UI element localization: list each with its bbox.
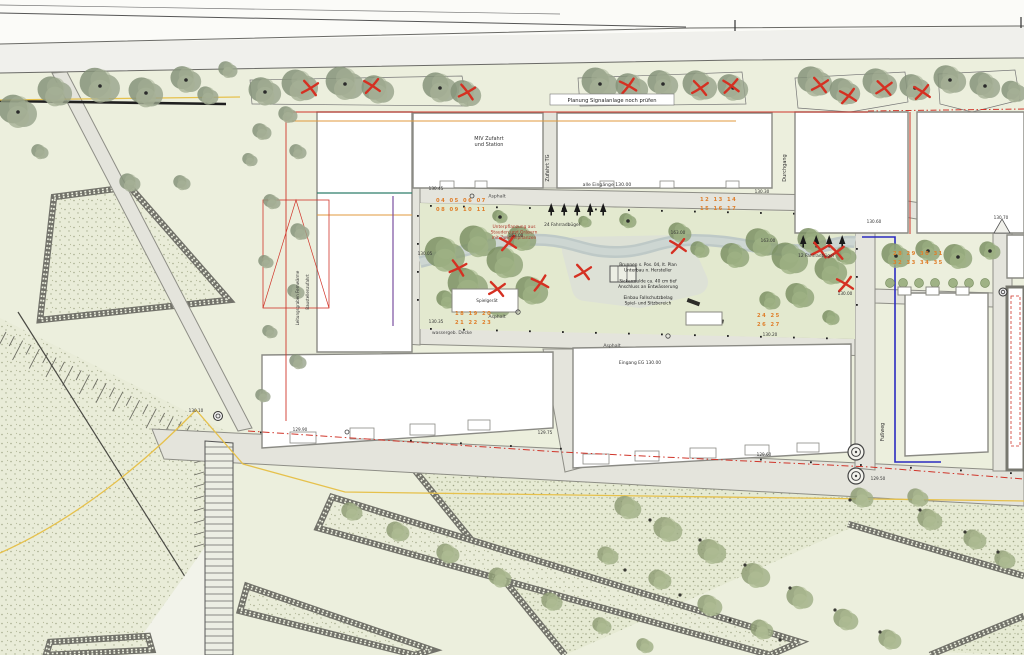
court-tree [442,291,453,302]
shrub-tree [840,610,853,623]
shrub-tree [924,510,937,523]
facade-entrance [475,181,487,188]
path-post [856,248,858,250]
street-tree [258,124,268,134]
shrub-tree [749,564,764,579]
plan-label: 129.60 [757,452,772,457]
site-plan-drawing: Planung Signalanlage noch prüfenMIV Zufa… [0,0,1024,655]
court-tree [496,248,515,267]
existing-tree-dot [948,78,952,82]
shrub-ball [965,279,974,288]
path-post [661,210,663,212]
stairs-strip [205,441,233,655]
planting-dot [788,586,791,589]
parking-number-row: 15 16 17 [700,206,737,212]
planting-dot [878,630,881,633]
shrub-tree [857,488,869,500]
path-post [960,470,962,472]
plan-label: Durchgang [782,154,788,181]
path-post [793,337,795,339]
court-tree [582,216,589,223]
path-post [760,459,762,461]
planting-dot [728,618,731,621]
building-i [905,293,988,456]
path-post [496,330,498,332]
existing-tree-dot [956,255,960,259]
planting-dot [918,508,921,511]
parking-number-row: 21 22 23 [455,320,492,326]
court-tree [827,311,836,320]
parking-number-row: 32 33 34 35 [893,260,944,266]
path-post [417,243,419,245]
plan-label: 130.70 [994,215,1009,220]
existing-tree-dot [983,84,987,88]
path-post [760,336,762,338]
plan-label: MIV Zufahrtund Station [474,136,503,148]
path-post [595,209,597,211]
court-tree [696,242,706,252]
plan-label: 130.30 [755,189,770,194]
court-tree [436,238,457,259]
plan-label: 130.05 [418,251,433,256]
street-tree [268,195,277,204]
path-post [417,215,419,217]
existing-tree-dot [343,82,347,86]
street-tree [36,145,45,154]
path-post [460,442,462,444]
plan-label: 163.00 [509,233,524,238]
shrub-ball [981,279,990,288]
shrub-tree [393,522,405,534]
bike-rack-icon [802,244,804,248]
street-tree [178,176,187,185]
parking-number-row: 04 05 06 07 [436,198,487,204]
surface-rect [898,287,911,295]
planting-dot [996,550,999,553]
plan-label: wassergeb. Decke [432,330,472,336]
street-tree [291,71,310,90]
parking-number-row: 08 09 10 11 [436,207,487,213]
shrub-tree [443,544,455,556]
path-post [560,448,562,450]
site-plan-stage: Planung Signalanlage noch prüfenMIV Zufa… [0,0,1024,655]
plan-label: Fußweg [880,423,886,441]
plan-label: 12 Fahrradbügel [798,253,834,259]
path-post [417,299,419,301]
path-post [410,440,412,442]
planting-dot [778,638,781,641]
bike-rack-icon [602,212,604,216]
path-post [810,461,812,463]
path-post [727,335,729,337]
street-tree [1008,82,1021,95]
manhole-cover [999,288,1007,296]
shrub-ball [886,279,895,288]
shrub-tree [913,489,924,500]
shrub-tree [547,593,558,604]
existing-tree-dot [626,219,630,223]
shrub-tree [1000,551,1011,562]
shrub-tree [655,570,667,582]
shrub-ball [899,279,908,288]
street-tree [246,154,254,162]
bike-rack-icon [550,212,552,216]
path-post [430,328,432,330]
facade-entrance [410,424,435,435]
surface-rect [926,287,939,295]
building-g2 [1007,235,1024,278]
planting-dot [678,593,681,596]
court-tree [469,227,488,246]
street-tree [266,326,274,334]
parking-number-row: 28 29 30 31 [893,251,944,257]
shrub-tree [794,587,808,601]
surface-rect [956,287,969,295]
path-post [595,332,597,334]
path-post [694,334,696,336]
facade-entrance [635,451,659,461]
building-d [413,113,543,188]
street-tree [284,107,294,117]
street-tree [259,390,267,398]
existing-tree-dot [498,215,502,219]
manhole-cover [214,412,223,421]
existing-tree-dot [16,110,20,114]
facade-entrance [660,181,674,188]
street-tree [125,174,136,185]
street-tree [262,256,270,264]
shrub-tree [622,497,636,511]
street-tree [224,62,234,72]
existing-tree-dot [988,249,992,253]
plan-label: Asphalt [488,194,505,200]
path-post [496,206,498,208]
plan-label: Asphalt [603,343,620,349]
plan-label: 129.75 [538,430,553,435]
plan-label: 130.60 [867,219,882,224]
shrub-tree [704,596,717,609]
shrub-tree [641,639,650,648]
court-tree [793,284,808,299]
existing-tree-dot [438,86,442,90]
parking-number-row: 26 27 [757,322,781,328]
planting-dot [623,568,626,571]
building-f [795,112,908,233]
plan-label: 130.10 [189,408,204,413]
path-post [430,205,432,207]
plan-label: Zufahrt TG [545,154,551,181]
shrub-tree [598,618,608,628]
shrub-tree [661,518,676,533]
shrub-tree [705,540,720,555]
surface-rect [686,312,722,325]
existing-tree-dot [98,84,102,88]
facade-entrance [468,420,490,430]
shrub-ball [949,279,958,288]
plan-label: 130.20 [763,332,778,337]
planter-circle-dot [855,451,857,453]
planting-dot [698,538,701,541]
court-tree [728,244,743,259]
path-post [1010,472,1012,474]
plan-label: Planung Signalanlage noch prüfen [568,98,657,104]
facade-entrance [690,448,716,458]
building-a [317,112,412,352]
parking-number-row: 24 25 [757,313,781,319]
planter-circle-dot [855,475,857,477]
court-tree [765,292,776,303]
plan-label: Baustellenzufahrt [305,274,310,310]
bike-rack-icon [563,212,565,216]
facade-entrance [583,454,609,464]
path-post [510,445,512,447]
planting-dot [963,530,966,533]
existing-tree-dot [661,82,665,86]
shrub-tree [885,630,897,642]
path-post [856,304,858,306]
plan-label: Brunnen s. Pos. 04, lt. PlanUnterbau n. … [618,262,678,307]
existing-tree-dot [598,82,602,86]
bike-rack-icon [589,212,591,216]
shrub-ball [931,279,940,288]
path-post [694,211,696,213]
plan-label: Eingang EG 130.00 [619,360,661,366]
street-tree [203,87,214,98]
path-post [860,464,862,466]
planting-dot [833,608,836,611]
plan-label: 130.35 [429,319,444,324]
plan-label: 130.00 [838,291,853,296]
bike-rack-icon [576,212,578,216]
street-tree [294,355,303,364]
plan-label: 163.00 [761,238,776,243]
path-post [760,212,762,214]
path-post [661,334,663,336]
path-post [562,331,564,333]
building-e [557,113,772,188]
path-post [826,337,828,339]
path-post [529,207,531,209]
path-post [417,271,419,273]
plan-label: Spielgerät [476,298,498,303]
plan-label: 129.90 [293,427,308,432]
path-post [628,209,630,211]
shrub-tree [970,530,982,542]
shrub-tree [603,547,614,558]
existing-tree-dot [144,91,148,95]
plan-label: 163.00 [671,230,686,235]
planting-dot [743,563,746,566]
path-post [529,330,531,332]
planting-dot [648,518,651,521]
parking-number-row: 18 19 20 [455,311,492,317]
plan-label: 130.45 [429,186,444,191]
path-post [628,333,630,335]
path-post [856,276,858,278]
path-post [910,467,912,469]
shrub-tree [495,568,507,580]
street-tree [47,78,65,96]
facade-entrance [797,443,819,452]
facade-entrance [350,428,374,439]
plan-label: alle Eingänge 130.00 [583,182,632,188]
plan-label: Leitungsgraben Fernwärme [295,270,300,325]
plan-label: 24 Fahrradbügel [544,222,580,228]
street-tree [294,145,303,154]
existing-tree-dot [184,78,188,82]
existing-tree-dot [263,90,267,94]
parking-number-row: 12 13 14 [700,197,737,203]
facade-entrance [726,181,739,188]
planting-dot [848,498,851,501]
street-tree [296,224,306,234]
shrub-tree [347,503,358,514]
building-h [1007,287,1024,470]
plan-label: 129.50 [871,476,886,481]
shrub-tree [757,620,769,632]
shrub-ball [915,279,924,288]
